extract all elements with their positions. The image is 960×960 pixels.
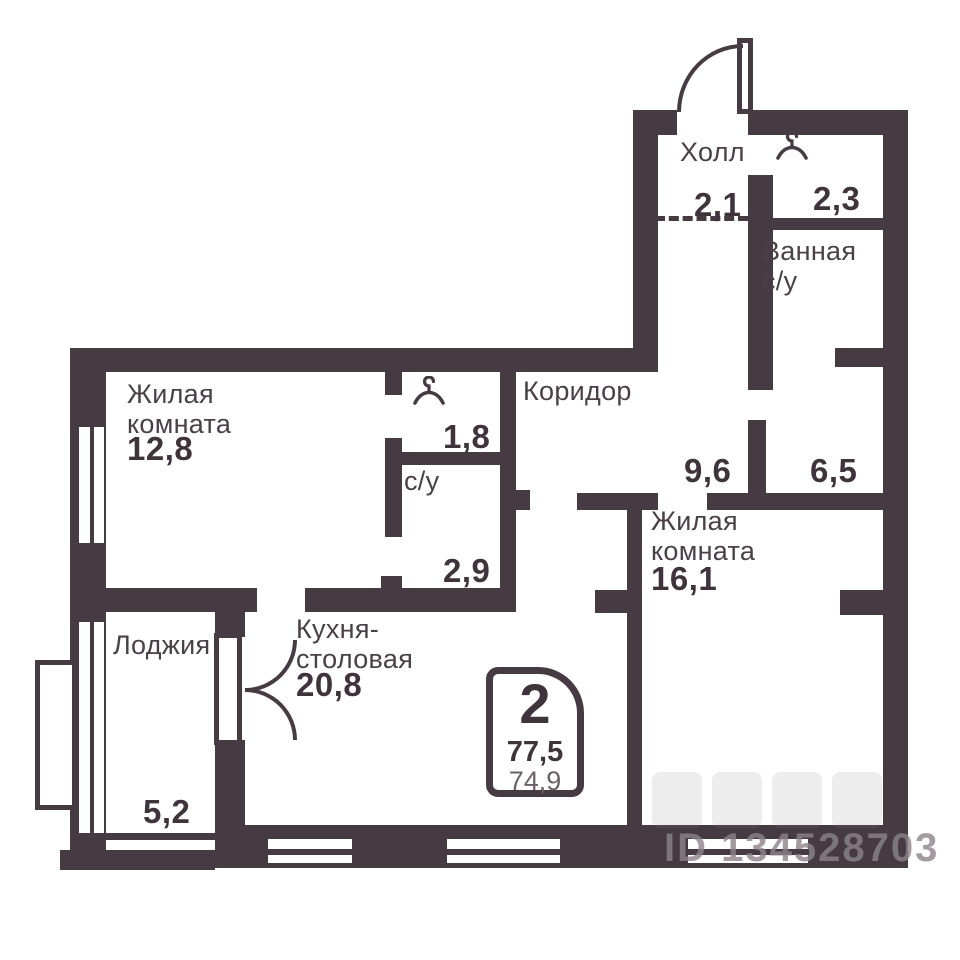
area-hall-closet: 2,3 [813,180,860,218]
window-living1-inner [94,427,104,543]
kitchen-column-stub [595,590,627,613]
hall-left-wall [633,110,658,372]
label-living-room-2: Жилая комната [651,506,755,566]
wc-left-wall-upper [385,370,402,395]
badge-total-area: 77,5 [507,737,563,767]
floor-plan: Холл 2,1 2,3 Ванная с/у Жилая комната 12… [0,0,960,960]
apartment-info-badge: 2 77,5 74,9 [486,667,584,797]
wc-right-wall-bump [500,490,530,510]
area-corridor: 9,6 [684,452,731,490]
loggia-door-arc-bottom [245,688,297,740]
label-loggia: Лоджия [113,630,210,660]
label-hall: Холл [680,137,745,167]
window-living1-outer [79,427,90,543]
corridor-bottom-wall-left [577,493,658,510]
living2-column-stub [840,590,883,615]
wc-bottom-wall [305,588,516,612]
wc-left-wall-mid [385,438,402,537]
wc-left-wall-bump [381,576,402,592]
badge-secondary-area: 74,9 [509,767,562,797]
wc-right-wall [500,370,516,607]
hanger-icon-hall-closet [770,131,814,165]
watermark-logo [652,772,882,828]
label-wc: с/у [404,466,439,496]
bathroom-bottom-wall [835,348,908,367]
watermark-listing-id: ID 134528703 [664,826,939,871]
loggia-bottom-wall [60,850,215,870]
badge-room-count: 2 [519,676,550,732]
adjacent-balcony-outline [35,660,77,810]
area-wc: 2,9 [443,552,490,590]
area-kitchen: 20,8 [296,666,362,704]
window-loggia-left-inner [94,622,104,833]
label-corridor: Коридор [523,376,632,406]
bathroom-top-wall [773,218,883,230]
living1-bottom-wall [70,588,257,612]
loggia-kitchen-wall-lower [215,740,245,850]
kitchen-living2-divider [627,510,642,825]
area-living-room-2: 16,1 [651,560,717,598]
label-bathroom: Ванная с/у [762,236,856,296]
right-outer-wall [883,110,908,868]
loggia-parapet-line [105,833,215,840]
hanger-icon-wardrobe [407,376,451,410]
window-kitchen-1-outer [268,839,352,849]
window-kitchen-2-inner [447,855,560,863]
corridor-right-wall [748,420,766,500]
loggia-door-leaf [214,633,242,745]
area-loggia: 5,2 [143,793,190,831]
window-loggia-left-outer [79,622,90,833]
loggia-door-arc-top [245,640,297,692]
area-hall: 2,1 [694,186,741,224]
window-kitchen-2-outer [447,839,560,849]
area-utility: 6,5 [810,452,857,490]
window-kitchen-1-inner [268,855,352,863]
entry-door-swing-arc [677,44,743,112]
area-living-room-1: 12,8 [127,430,193,468]
upper-outer-wall-left-block [70,348,658,372]
area-wardrobe: 1,8 [443,418,490,456]
